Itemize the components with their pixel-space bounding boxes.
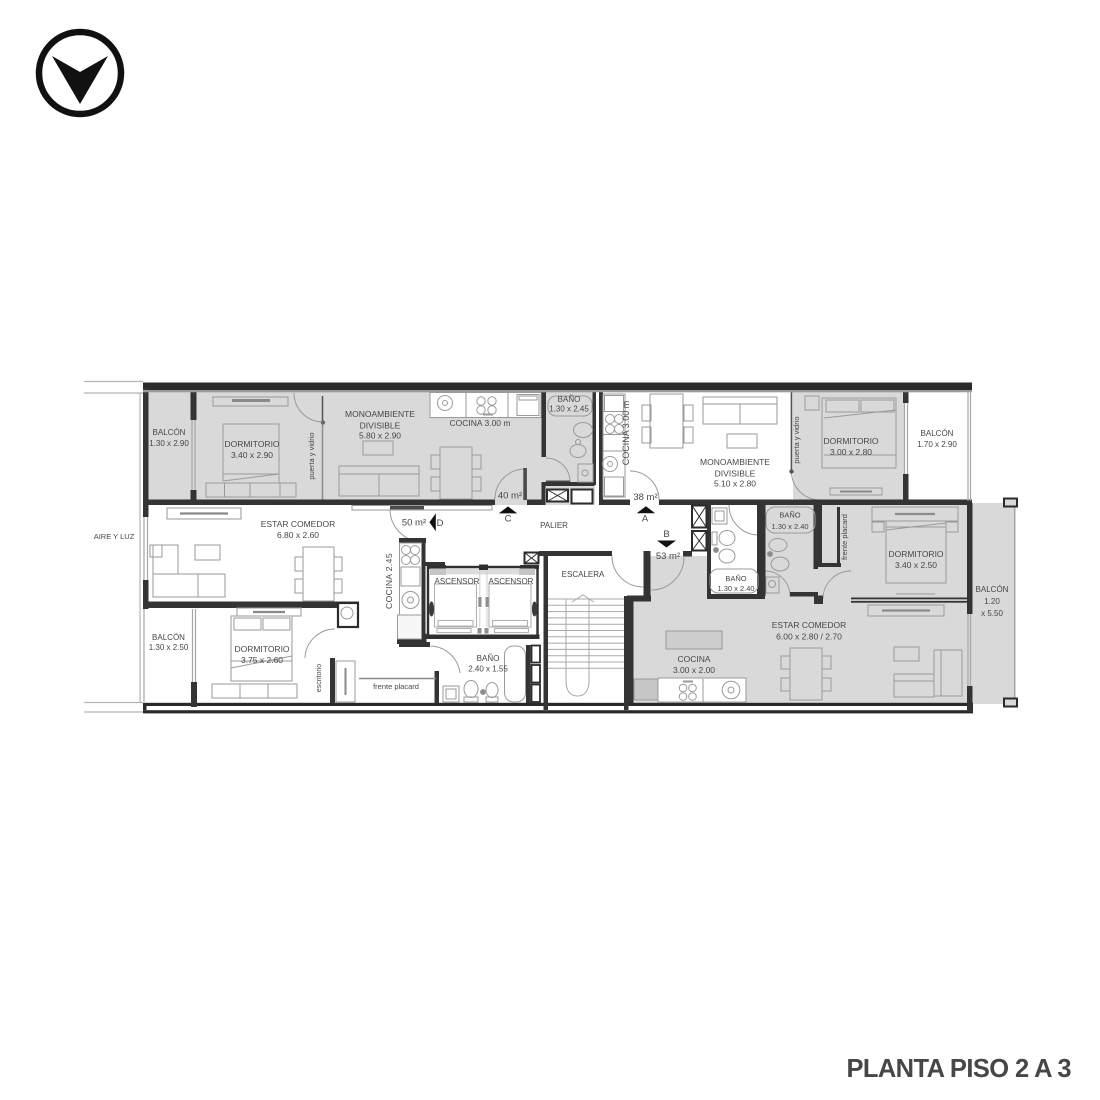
svg-text:1.30 x 2.45: 1.30 x 2.45 (549, 405, 589, 414)
svg-text:3.40 x 2.90: 3.40 x 2.90 (231, 450, 273, 460)
svg-text:BALCÓN: BALCÓN (976, 585, 1009, 594)
svg-text:1.30 x 2.40: 1.30 x 2.40 (717, 584, 754, 593)
svg-text:5.10 x 2.80: 5.10 x 2.80 (714, 479, 756, 489)
svg-text:COCINA: COCINA (677, 654, 710, 664)
svg-text:puerta y vidrio: puerta y vidrio (307, 432, 316, 479)
svg-text:MONOAMBIENTE: MONOAMBIENTE (345, 409, 415, 419)
svg-text:1.30 x 2.40: 1.30 x 2.40 (771, 522, 808, 531)
svg-text:BAÑO: BAÑO (725, 574, 746, 583)
svg-text:D: D (437, 518, 444, 529)
svg-text:ESCALERA: ESCALERA (562, 570, 605, 579)
svg-text:BAÑO: BAÑO (779, 511, 800, 520)
svg-text:ASCENSOR: ASCENSOR (435, 577, 480, 586)
svg-text:x 5.50: x 5.50 (981, 609, 1003, 618)
svg-text:BAÑO: BAÑO (477, 654, 500, 663)
svg-text:BALCÓN: BALCÓN (152, 633, 185, 642)
svg-text:DIVISIBLE: DIVISIBLE (715, 469, 756, 479)
svg-text:3.40 x 2.50: 3.40 x 2.50 (895, 560, 937, 570)
svg-text:DORMITORIO: DORMITORIO (224, 439, 279, 449)
svg-text:ESTAR COMEDOR: ESTAR COMEDOR (772, 620, 846, 630)
svg-text:puerta y vidrio: puerta y vidrio (792, 416, 801, 463)
svg-text:DIVISIBLE: DIVISIBLE (360, 421, 401, 431)
svg-text:PLANTA PISO 2 A 3: PLANTA PISO 2 A 3 (846, 1055, 1071, 1083)
svg-text:COCINA 3.00 m: COCINA 3.00 m (621, 401, 631, 466)
svg-text:BALCÓN: BALCÓN (921, 429, 954, 438)
svg-text:COCINA 2.45: COCINA 2.45 (384, 553, 394, 609)
svg-text:1.70 x 2.90: 1.70 x 2.90 (917, 440, 957, 449)
svg-text:BAÑO: BAÑO (558, 395, 581, 404)
svg-text:1.30 x 2.50: 1.30 x 2.50 (149, 643, 189, 652)
svg-text:C: C (505, 514, 512, 525)
svg-text:2.40 x 1.55: 2.40 x 1.55 (468, 665, 508, 674)
svg-text:COCINA 3.00 m: COCINA 3.00 m (450, 418, 511, 428)
svg-text:DORMITORIO: DORMITORIO (234, 644, 289, 654)
svg-text:5.80 x 2.90: 5.80 x 2.90 (359, 431, 401, 441)
svg-text:BALCÓN: BALCÓN (153, 428, 186, 437)
svg-text:3.75 x 2.60: 3.75 x 2.60 (241, 655, 283, 665)
svg-text:3.00 x 2.00: 3.00 x 2.00 (673, 665, 715, 675)
svg-text:AIRE Y LUZ: AIRE Y LUZ (94, 532, 135, 541)
svg-text:frente placard: frente placard (840, 514, 849, 560)
svg-text:DORMITORIO: DORMITORIO (823, 436, 878, 446)
svg-text:53 m²: 53 m² (656, 551, 680, 562)
svg-text:A: A (642, 514, 649, 525)
svg-text:6.80 x 2.60: 6.80 x 2.60 (277, 530, 319, 540)
svg-text:3.00 x 2.80: 3.00 x 2.80 (830, 447, 872, 457)
svg-text:MONOAMBIENTE: MONOAMBIENTE (700, 457, 770, 467)
svg-text:40 m²: 40 m² (498, 491, 522, 502)
svg-text:B: B (663, 529, 669, 540)
svg-text:DORMITORIO: DORMITORIO (888, 549, 943, 559)
svg-text:ASCENSOR: ASCENSOR (489, 577, 534, 586)
svg-text:6.00 x 2.80 / 2.70: 6.00 x 2.80 / 2.70 (776, 632, 842, 642)
svg-text:1.30 x 2.90: 1.30 x 2.90 (149, 439, 189, 448)
svg-text:1.20: 1.20 (984, 597, 1000, 606)
svg-text:50 m²: 50 m² (402, 518, 426, 529)
svg-text:38 m²: 38 m² (633, 492, 657, 503)
svg-text:escritorio: escritorio (316, 664, 323, 693)
svg-text:ESTAR COMEDOR: ESTAR COMEDOR (261, 519, 335, 529)
svg-text:frente placard: frente placard (373, 682, 419, 691)
svg-text:PALIER: PALIER (540, 521, 568, 530)
